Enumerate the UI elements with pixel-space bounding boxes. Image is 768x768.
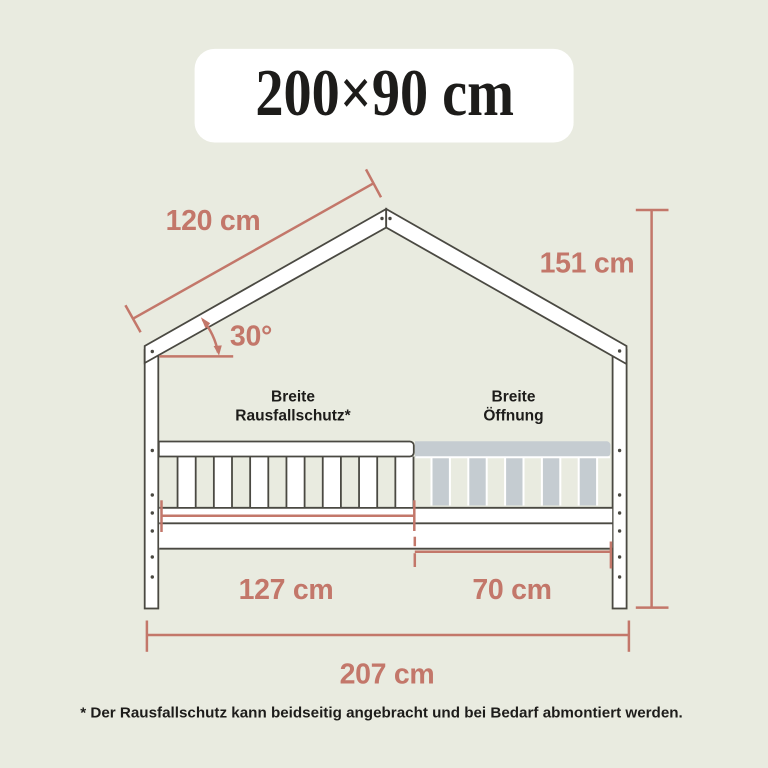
svg-text:70 cm: 70 cm	[472, 574, 551, 606]
svg-text:30°: 30°	[230, 321, 272, 353]
svg-text:200×90 cm: 200×90 cm	[255, 57, 514, 131]
svg-text:Öffnung: Öffnung	[483, 408, 543, 425]
svg-text:* Der Rausfallschutz kann beid: * Der Rausfallschutz kann beidseitig ang…	[80, 705, 683, 722]
svg-text:Breite: Breite	[492, 389, 536, 406]
svg-text:Breite: Breite	[271, 389, 315, 406]
svg-text:Rausfallschutz*: Rausfallschutz*	[235, 408, 351, 425]
svg-text:151 cm: 151 cm	[540, 248, 635, 280]
svg-text:127 cm: 127 cm	[239, 574, 334, 606]
svg-text:207 cm: 207 cm	[340, 659, 435, 691]
svg-text:120 cm: 120 cm	[166, 205, 261, 237]
